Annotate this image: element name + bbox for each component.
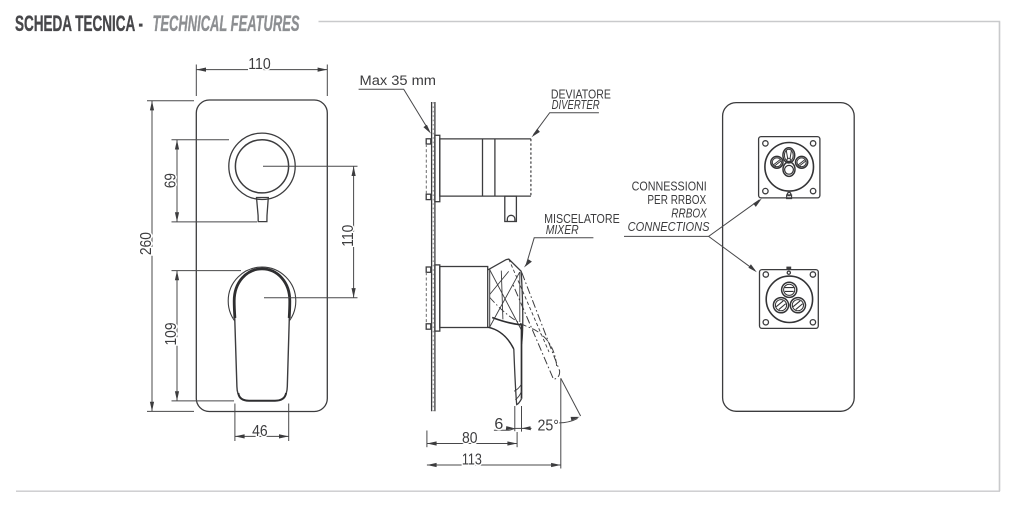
svg-text:CONNECTIONS: CONNECTIONS	[628, 219, 710, 234]
svg-text:MIXER: MIXER	[546, 222, 579, 237]
svg-text:25°: 25°	[537, 417, 559, 434]
svg-text:Max 35 mm: Max 35 mm	[360, 73, 437, 89]
svg-text:260: 260	[138, 232, 155, 255]
svg-text:6: 6	[494, 416, 503, 433]
svg-text:DIVERTER: DIVERTER	[552, 97, 600, 112]
svg-text:SCHEDA TECNICA -: SCHEDA TECNICA -	[15, 11, 143, 36]
svg-text:69: 69	[163, 173, 180, 188]
svg-text:TECHNICAL FEATURES: TECHNICAL FEATURES	[153, 11, 300, 36]
svg-text:80: 80	[462, 430, 478, 447]
svg-text:RRBOX: RRBOX	[671, 205, 708, 220]
svg-text:46: 46	[252, 423, 268, 440]
svg-text:110: 110	[248, 56, 271, 73]
svg-text:113: 113	[462, 451, 482, 468]
svg-text:CONNESSIONI: CONNESSIONI	[632, 178, 707, 193]
svg-text:110: 110	[340, 225, 357, 247]
svg-text:109: 109	[163, 322, 180, 345]
